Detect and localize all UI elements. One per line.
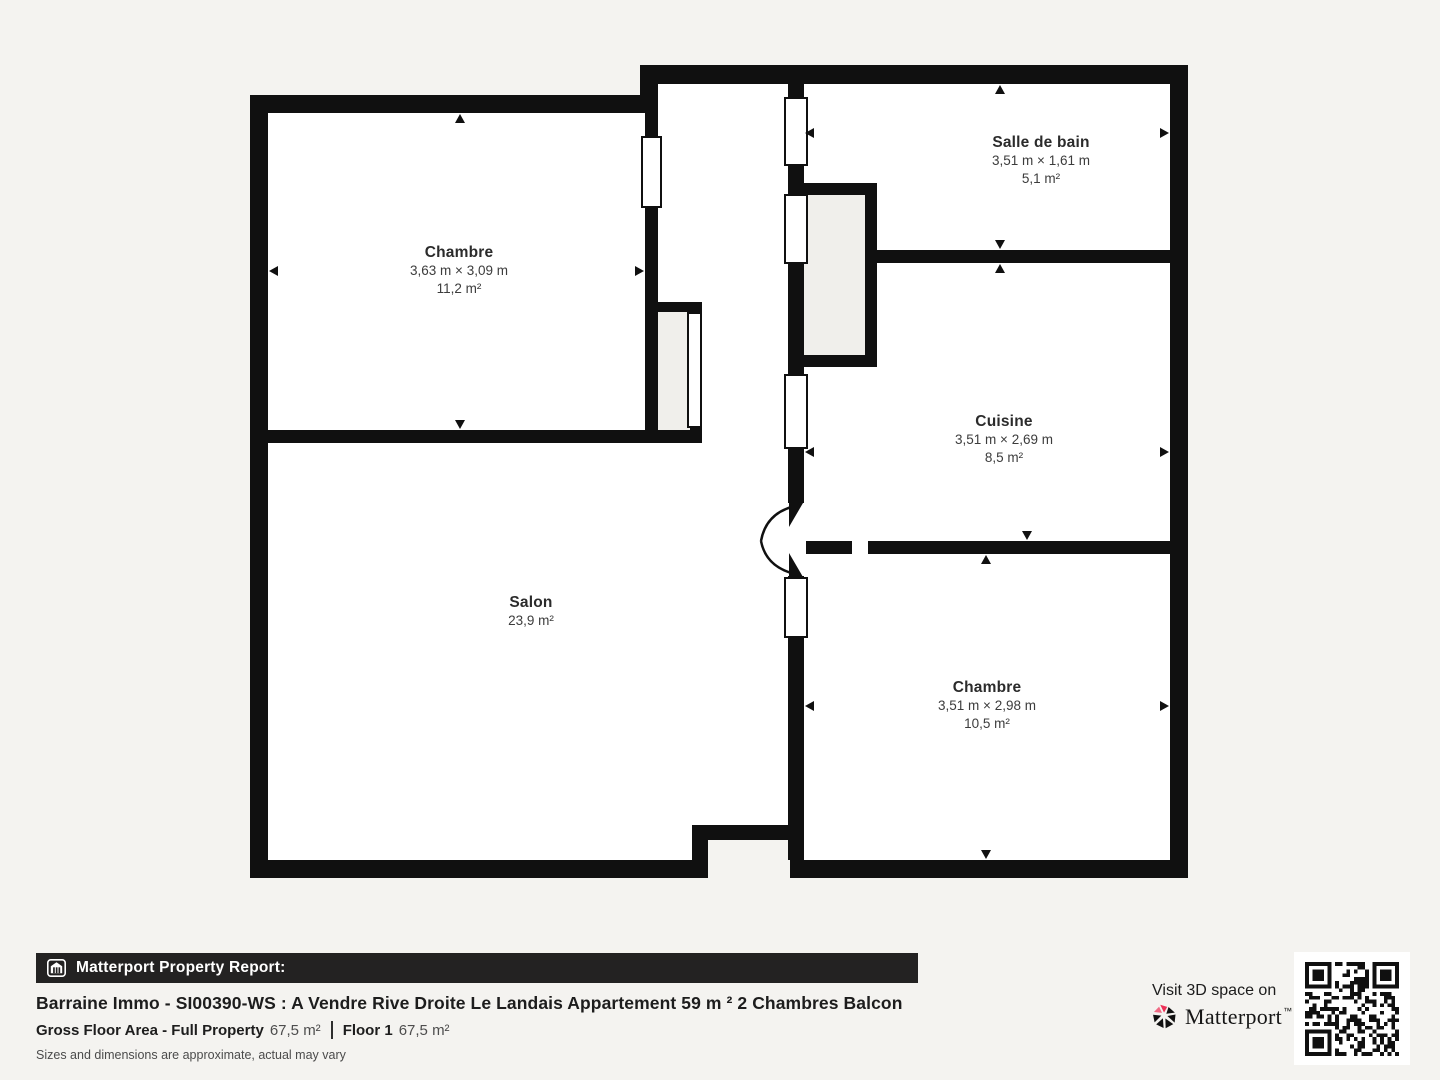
gross-floor-label: Gross Floor Area - Full Property bbox=[36, 1022, 264, 1039]
room-interiors bbox=[250, 65, 1188, 880]
page-root: Chambre 3,63 m × 3,09 m 11,2 m² Salle de… bbox=[0, 0, 1440, 1080]
report-title: Barraine Immo - SI00390-WS : A Vendre Ri… bbox=[36, 993, 936, 1014]
area-summary: Gross Floor Area - Full Property 67,5 m²… bbox=[36, 1021, 450, 1039]
report-bar-label: Matterport Property Report: bbox=[76, 959, 286, 977]
gross-floor-value: 67,5 m² bbox=[270, 1022, 321, 1039]
matterport-logo-icon bbox=[1151, 1003, 1178, 1030]
floor-plan bbox=[0, 0, 1440, 1080]
qr-code bbox=[1294, 952, 1410, 1065]
report-bar: Matterport Property Report: bbox=[36, 953, 918, 983]
property-report-icon bbox=[47, 959, 66, 977]
separator bbox=[331, 1021, 333, 1039]
disclaimer: Sizes and dimensions are approximate, ac… bbox=[36, 1048, 346, 1062]
floor-value: 67,5 m² bbox=[399, 1022, 450, 1039]
floor-label: Floor 1 bbox=[343, 1022, 393, 1039]
matterport-logo: Matterport™ bbox=[1151, 1003, 1292, 1030]
trademark-mark: ™ bbox=[1283, 1006, 1292, 1016]
visit-3d-text: Visit 3D space on bbox=[1152, 982, 1276, 1000]
matterport-wordmark: Matterport™ bbox=[1185, 1004, 1292, 1030]
